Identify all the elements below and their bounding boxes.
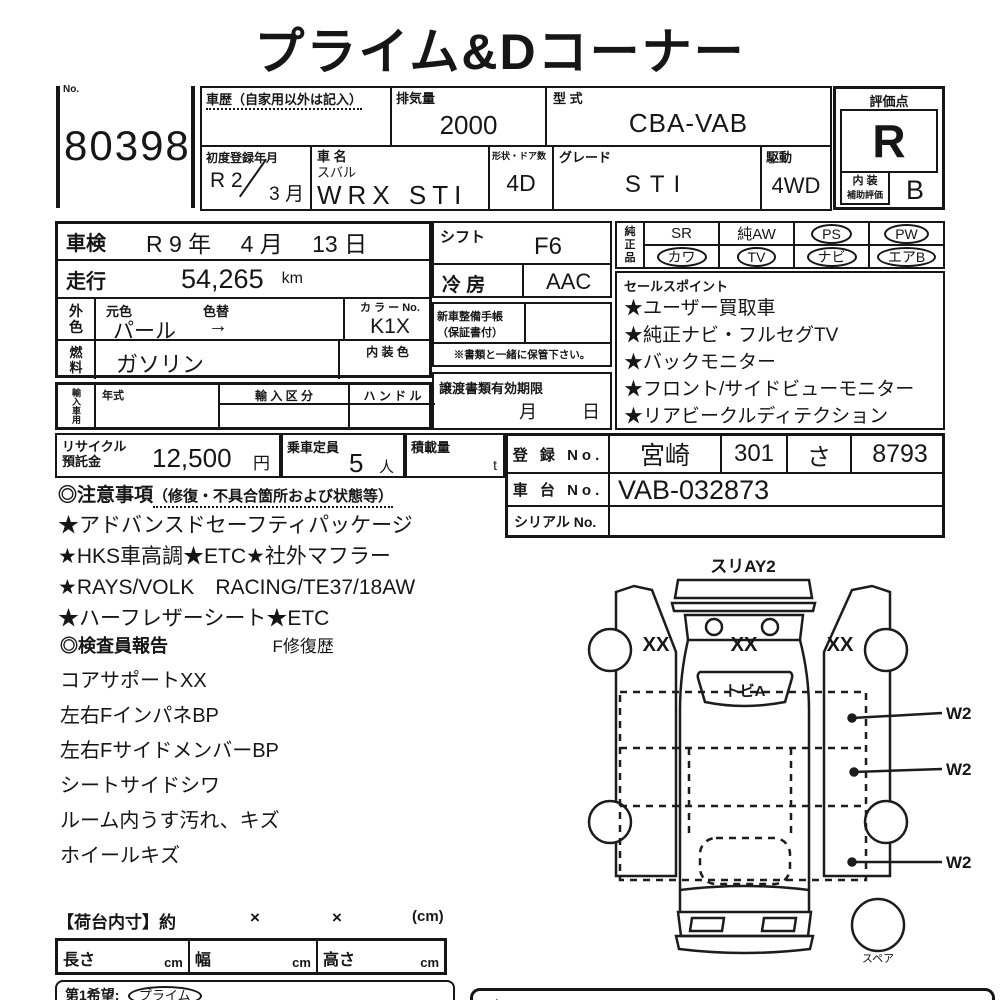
ac-value: AAC — [546, 269, 591, 295]
cargo-length-cell: 長さ cm — [58, 941, 190, 972]
spare-label: スペア — [862, 953, 894, 965]
length-unit: cm — [164, 955, 183, 970]
color-no-value: K1X — [345, 315, 435, 339]
width-unit: cm — [292, 955, 311, 970]
transfer-label: 譲渡書類有効期限 — [439, 378, 543, 397]
service-book-label-cell: 新車整備手帳 （保証書付） — [434, 304, 526, 342]
inspector-report: ◎検査員報告 F修復歴 コアサポートXX 左右FインパネBP 左右Fサイドメンバ… — [60, 632, 520, 874]
ac-label: 冷 房 — [442, 270, 485, 297]
sales-points-box: セールスポイント ★ユーザー買取車 ★純正ナビ・フルセグTV ★バックモニター … — [615, 271, 945, 430]
repair-history: F修復歴 — [272, 637, 333, 656]
drive-cell: 駆動 4WD — [760, 145, 832, 211]
shape-cell: 形状・ドア数 4D — [488, 145, 554, 211]
capacity-value: 5 — [349, 448, 363, 479]
cargo-height-cell: 高さ cm — [318, 941, 444, 972]
chassis-value: VAB-032873 — [618, 475, 769, 506]
notes-header-line: ◎注意事項（修復・不具合箇所および状態等） — [58, 480, 513, 507]
rear-panel — [678, 912, 811, 936]
transfer-docs-box: 譲渡書類有効期限 月 日 — [432, 372, 612, 430]
page-title: プライム&Dコーナー — [0, 12, 1000, 84]
w2-label-3: W2 — [946, 853, 972, 872]
registration-block: 登 録 No. 宮崎 301 さ 8793 車 台 No. VAB-032873… — [505, 433, 945, 538]
import-class-label: 輸 入 区 分 — [220, 385, 348, 405]
reg-kana: さ — [788, 436, 852, 472]
load-unit: t — [493, 457, 497, 473]
color-no-label: カ ラ ー No. — [345, 299, 435, 315]
bracket-right — [191, 86, 195, 208]
ac-box: 冷 房 AAC — [432, 263, 612, 298]
interior-rating-label-cell: 内 装 補助評価 — [840, 173, 890, 205]
month-char: 月 — [519, 398, 537, 424]
rear-lamp-left — [690, 918, 724, 931]
left-fender-mark: XX — [643, 634, 670, 656]
drive-value: 4WD — [766, 173, 826, 199]
report-header: ◎検査員報告 — [60, 636, 168, 656]
grade-value: STI — [559, 171, 755, 199]
cargo-unit: (cm) — [412, 908, 444, 925]
recycle-unit: 円 — [253, 449, 270, 474]
vehicle-damage-diagram: スリAY2 XX XX XX トビA W2 W2 W2 スペア — [552, 550, 1000, 965]
auction-number: 80398 — [64, 122, 191, 170]
maker-name: スバル — [317, 166, 483, 180]
w2-label-2: W2 — [946, 760, 972, 779]
hood-mark: XX — [731, 634, 758, 656]
recycle-label: リサイクル 預託金 — [62, 439, 126, 469]
load-label: 積載量 — [411, 437, 450, 456]
fuel-label: 燃料 — [58, 341, 96, 379]
first-reg-month: 3 月 — [269, 179, 304, 206]
year-label: 年式 — [102, 387, 124, 403]
w2-label-1: W2 — [946, 704, 972, 723]
sales-item: ★バックモニター — [624, 349, 936, 376]
windshield-mark: トビA — [725, 683, 766, 700]
report-item: 左右FサイドメンバーBP — [60, 734, 520, 769]
equipment-cells: SR 純AW PS PW カワ TV ナビ エアB — [643, 223, 943, 267]
cargo-table: 長さ cm 幅 cm 高さ cm — [55, 938, 447, 975]
recycle-box: リサイクル 預託金 12,500 円 — [55, 433, 281, 478]
trunk-line — [680, 886, 809, 890]
equip-sr: SR — [643, 223, 718, 246]
cargo-width-cell: 幅 cm — [190, 941, 318, 972]
service-book-box: 新車整備手帳 （保証書付） — [432, 302, 612, 344]
model-code-value: CBA-VAB — [553, 108, 824, 139]
shift-value: F6 — [534, 233, 562, 261]
sales-item: ★純正ナビ・フルセグTV — [624, 322, 936, 349]
diagram-front-label: スリAY2 — [710, 557, 776, 576]
first-choice-value: プライム — [128, 986, 202, 1000]
reg-number: 8793 — [852, 436, 948, 472]
mileage-row: 走行 54,265 km — [58, 261, 429, 299]
equip-navi: ナビ — [793, 246, 868, 267]
rear-glass-dashed — [700, 838, 790, 884]
displacement-label: 排気量 — [396, 91, 435, 106]
grade-label: グレード — [559, 150, 611, 165]
car-name-value: WRX STI — [317, 180, 483, 210]
reg-class: 301 — [722, 436, 788, 472]
rear-lamp-right — [762, 918, 796, 931]
handle-cell: ハ ン ド ル — [348, 385, 435, 427]
auction-sheet: プライム&Dコーナー No. 80398 車歴（自家用以外は記入） 排気量 20… — [0, 0, 1000, 1000]
ext-color-label: 外色 — [58, 299, 96, 339]
cargo-header: 【荷台内寸】約 — [57, 908, 176, 933]
equip-airbag: エアB — [868, 246, 943, 267]
right-fender-mark: XX — [827, 634, 854, 656]
shaken-value: R 9 年 4 月 13 日 — [146, 225, 367, 259]
reg-row: 登 録 No. 宮崎 301 さ 8793 — [508, 436, 942, 474]
serial-row: シリアル No. — [508, 507, 942, 537]
history-cell: 車歴（自家用以外は記入） — [200, 86, 392, 147]
front-bumper — [675, 580, 812, 598]
capacity-unit: 人 — [379, 456, 394, 477]
width-label: 幅 — [195, 946, 211, 970]
interior-label-1: 内 装 — [842, 175, 888, 188]
equipment-label: 純正品 — [617, 223, 643, 267]
service-book-label-1: 新車整備手帳 — [437, 308, 521, 324]
note-item: ★ハーフレザーシート★ETC — [58, 603, 513, 634]
cargo-x1: × — [250, 908, 260, 928]
load-box: 積載量 t — [405, 433, 505, 478]
shaken-row: 車検 R 9 年 4 月 13 日 — [58, 224, 429, 261]
first-choice-label: 第1希望: — [65, 987, 119, 1000]
drive-label: 駆動 — [766, 150, 792, 165]
no-label: No. — [63, 84, 79, 95]
interior-rating-value: B — [890, 175, 940, 205]
fuel-row: 燃料 ガソリン 内 装 色 — [58, 341, 429, 379]
headlight-left — [706, 619, 722, 635]
import-label: 輸入車用 — [58, 385, 96, 427]
chassis-row: 車 台 No. VAB-032873 — [508, 474, 942, 507]
shaken-label: 車検 — [66, 227, 106, 256]
w2-line-1 — [852, 713, 942, 718]
wheel-front-right — [865, 629, 907, 671]
height-unit: cm — [420, 955, 439, 970]
fuel-value: ガソリン — [116, 347, 204, 379]
capacity-label: 乗車定員 — [287, 437, 339, 456]
roof-outline-dashed — [620, 692, 866, 880]
shape-value: 4D — [492, 170, 550, 197]
first-reg-cell: 初度登録年月 R 2 3 月 — [200, 145, 312, 211]
capacity-box: 乗車定員 5 人 — [281, 433, 405, 478]
equip-tv: TV — [718, 246, 793, 267]
report-header-line: ◎検査員報告 F修復歴 — [60, 632, 520, 658]
report-item: ホイールキズ — [60, 839, 520, 874]
sales-item: ★ユーザー買取車 — [624, 295, 936, 322]
service-book-label-2: （保証書付） — [437, 324, 521, 340]
color-no-cell: カ ラ ー No. K1X — [343, 299, 435, 339]
mileage-value: 54,265 — [181, 264, 264, 295]
import-block: 輸入車用 年式 輸 入 区 分 ハ ン ド ル — [55, 382, 432, 430]
bracket-left — [56, 86, 60, 208]
body-side-right — [800, 640, 809, 912]
equipment-grid: 純正品 SR 純AW PS PW カワ TV ナビ エアB — [615, 221, 945, 269]
equip-ps: PS — [793, 223, 868, 246]
mileage-unit: km — [282, 270, 303, 288]
notes-header-sub: （修復・不具合箇所および状態等） — [153, 488, 393, 508]
first-reg-label: 初度登録年月 — [206, 151, 278, 165]
equip-kawa: カワ — [643, 246, 718, 267]
body-side-left — [680, 640, 688, 912]
day-char: 日 — [582, 398, 600, 424]
recycle-amount: 12,500 — [152, 443, 232, 474]
first-choice-box: 第1希望: プライム — [55, 980, 455, 1000]
reg-area: 宮崎 — [610, 436, 722, 472]
interior-color-cell: 内 装 色 — [338, 341, 435, 379]
height-label: 高さ — [323, 946, 355, 970]
grade-cell: グレード STI — [552, 145, 762, 211]
notes-header: ◎注意事項 — [58, 485, 153, 506]
displacement-value: 2000 — [396, 110, 541, 141]
sales-item: ★フロント/サイドビューモニター — [624, 376, 936, 403]
model-code-label: 型 式 — [553, 91, 583, 106]
interior-label-2: 補助評価 — [842, 188, 888, 201]
serial-label: シリアル No. — [508, 507, 610, 537]
ac-divider — [522, 265, 524, 296]
length-label: 長さ — [63, 946, 95, 970]
note-item: ★アドバンスドセーフティパッケージ — [58, 510, 513, 541]
car-name-cell: 車 名 スバル WRX STI — [310, 145, 490, 211]
notes-section: ◎注意事項（修復・不具合箇所および状態等） ★アドバンスドセーフティパッケージ … — [58, 480, 513, 634]
equip-aw: 純AW — [718, 223, 793, 246]
wheel-rear-right — [865, 801, 907, 843]
model-code-cell: 型 式 CBA-VAB — [545, 86, 832, 147]
displacement-cell: 排気量 2000 — [390, 86, 547, 147]
note-item: ★HKS車高調★ETC★社外マフラー — [58, 541, 513, 572]
color-change-arrow: → — [208, 315, 228, 338]
bottom-right-box: ◆ — [470, 988, 995, 1000]
report-item: 左右FインパネBP — [60, 699, 520, 734]
bottom-right-text: ◆ — [491, 996, 503, 1000]
keep-note-strip: ※書類と一緒に保管下さい。 — [432, 344, 612, 367]
rating-label: 評価点 — [836, 91, 942, 110]
history-label: 車歴（自家用以外は記入） — [206, 92, 362, 110]
shift-box: シフト F6 — [432, 221, 612, 265]
cargo-x2: × — [332, 908, 342, 928]
spec-block: 車検 R 9 年 4 月 13 日 走行 54,265 km 外色 元色 色替 … — [55, 221, 432, 378]
equip-pw: PW — [868, 223, 943, 246]
report-item: シートサイドシワ — [60, 769, 520, 804]
sales-item: ★リアビークルディテクション — [624, 403, 936, 430]
chassis-label: 車 台 No. — [508, 474, 610, 505]
shape-label: 形状・ドア数 — [492, 149, 550, 162]
shift-label: シフト — [440, 226, 485, 247]
rating-box: 評価点 R 内 装 補助評価 B — [833, 86, 945, 210]
report-item: ルーム内うす汚れ、キズ — [60, 804, 520, 839]
handle-label: ハ ン ド ル — [350, 385, 435, 405]
car-name-label: 車 名 — [317, 149, 347, 164]
wheel-front-left — [589, 629, 631, 671]
w2-line-2 — [854, 769, 942, 772]
rear-bumper — [676, 936, 813, 953]
report-item: コアサポートXX — [60, 664, 520, 699]
sales-points-label: セールスポイント — [624, 276, 936, 295]
spare-wheel — [852, 899, 904, 951]
front-bumper-lip — [672, 603, 815, 611]
color-row: 外色 元色 色替 パール → カ ラ ー No. K1X — [58, 299, 429, 341]
import-class-cell: 輸 入 区 分 — [218, 385, 348, 427]
mileage-label: 走行 — [66, 265, 106, 294]
interior-color-label: 内 装 色 — [340, 343, 435, 360]
rating-value: R — [840, 109, 938, 173]
reg-label: 登 録 No. — [508, 436, 610, 472]
note-item: ★RAYS/VOLK RACING/TE37/18AW — [58, 572, 513, 603]
headlight-right — [762, 619, 778, 635]
first-reg-year: R 2 — [210, 169, 243, 193]
wheel-rear-left — [589, 801, 631, 843]
